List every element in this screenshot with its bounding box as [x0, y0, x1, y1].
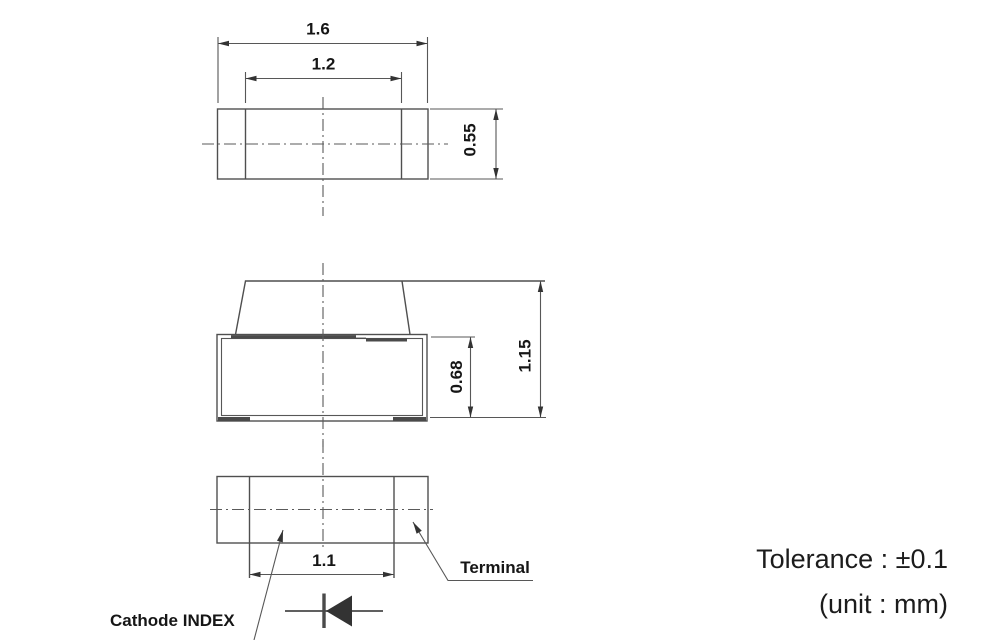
arrowhead [383, 572, 394, 577]
side-view: 0.68 1.15 [217, 263, 546, 447]
bottom-view: 1.1 Cathode INDEX Terminal [110, 441, 533, 640]
dim-label-depth: 0.55 [461, 123, 480, 156]
arrowhead [246, 76, 257, 81]
diode-triangle [326, 596, 352, 627]
drawing-canvas: 1.6 1.2 0.55 [0, 0, 981, 640]
arrowhead [417, 41, 428, 46]
terminal-callout: Terminal [413, 522, 533, 581]
arrowhead [218, 41, 229, 46]
dim-label-body-height: 0.68 [447, 360, 466, 393]
dim-depth: 0.55 [430, 109, 503, 179]
arrowhead [538, 281, 543, 292]
arrowhead [250, 572, 261, 577]
notes: Tolerance : ±0.1 (unit : mm) [756, 544, 948, 619]
terminal-label: Terminal [460, 558, 530, 577]
arrowhead [493, 109, 498, 120]
arrowhead [493, 168, 498, 179]
leader-line [254, 530, 283, 640]
arrowhead [468, 337, 473, 348]
unit-note: (unit : mm) [819, 589, 948, 619]
dim-label-total-height: 1.15 [516, 339, 535, 372]
dim-label-terminal-span: 1.1 [312, 551, 336, 570]
cathode-index-callout: Cathode INDEX [110, 530, 283, 640]
arrowhead [277, 530, 283, 542]
arrowhead [391, 76, 402, 81]
dim-label-inner-width: 1.2 [312, 55, 336, 74]
top-view: 1.6 1.2 0.55 [202, 20, 503, 217]
arrowhead [413, 522, 422, 534]
package-dimension-drawing: 1.6 1.2 0.55 [0, 0, 981, 640]
dim-total-height: 1.15 [516, 281, 544, 418]
lens-top-and-left-edge [236, 281, 546, 335]
dim-label-overall-width: 1.6 [306, 20, 330, 39]
side-view-body-outer [217, 335, 427, 422]
lens-right-edge [402, 281, 410, 335]
dim-inner-width: 1.2 [246, 55, 402, 104]
side-view-body-inner [222, 339, 423, 416]
diode-symbol-icon [285, 594, 383, 629]
arrowhead [538, 407, 543, 418]
tolerance-note: Tolerance : ±0.1 [756, 544, 948, 574]
arrowhead [468, 407, 473, 418]
cathode-index-label: Cathode INDEX [110, 611, 235, 630]
